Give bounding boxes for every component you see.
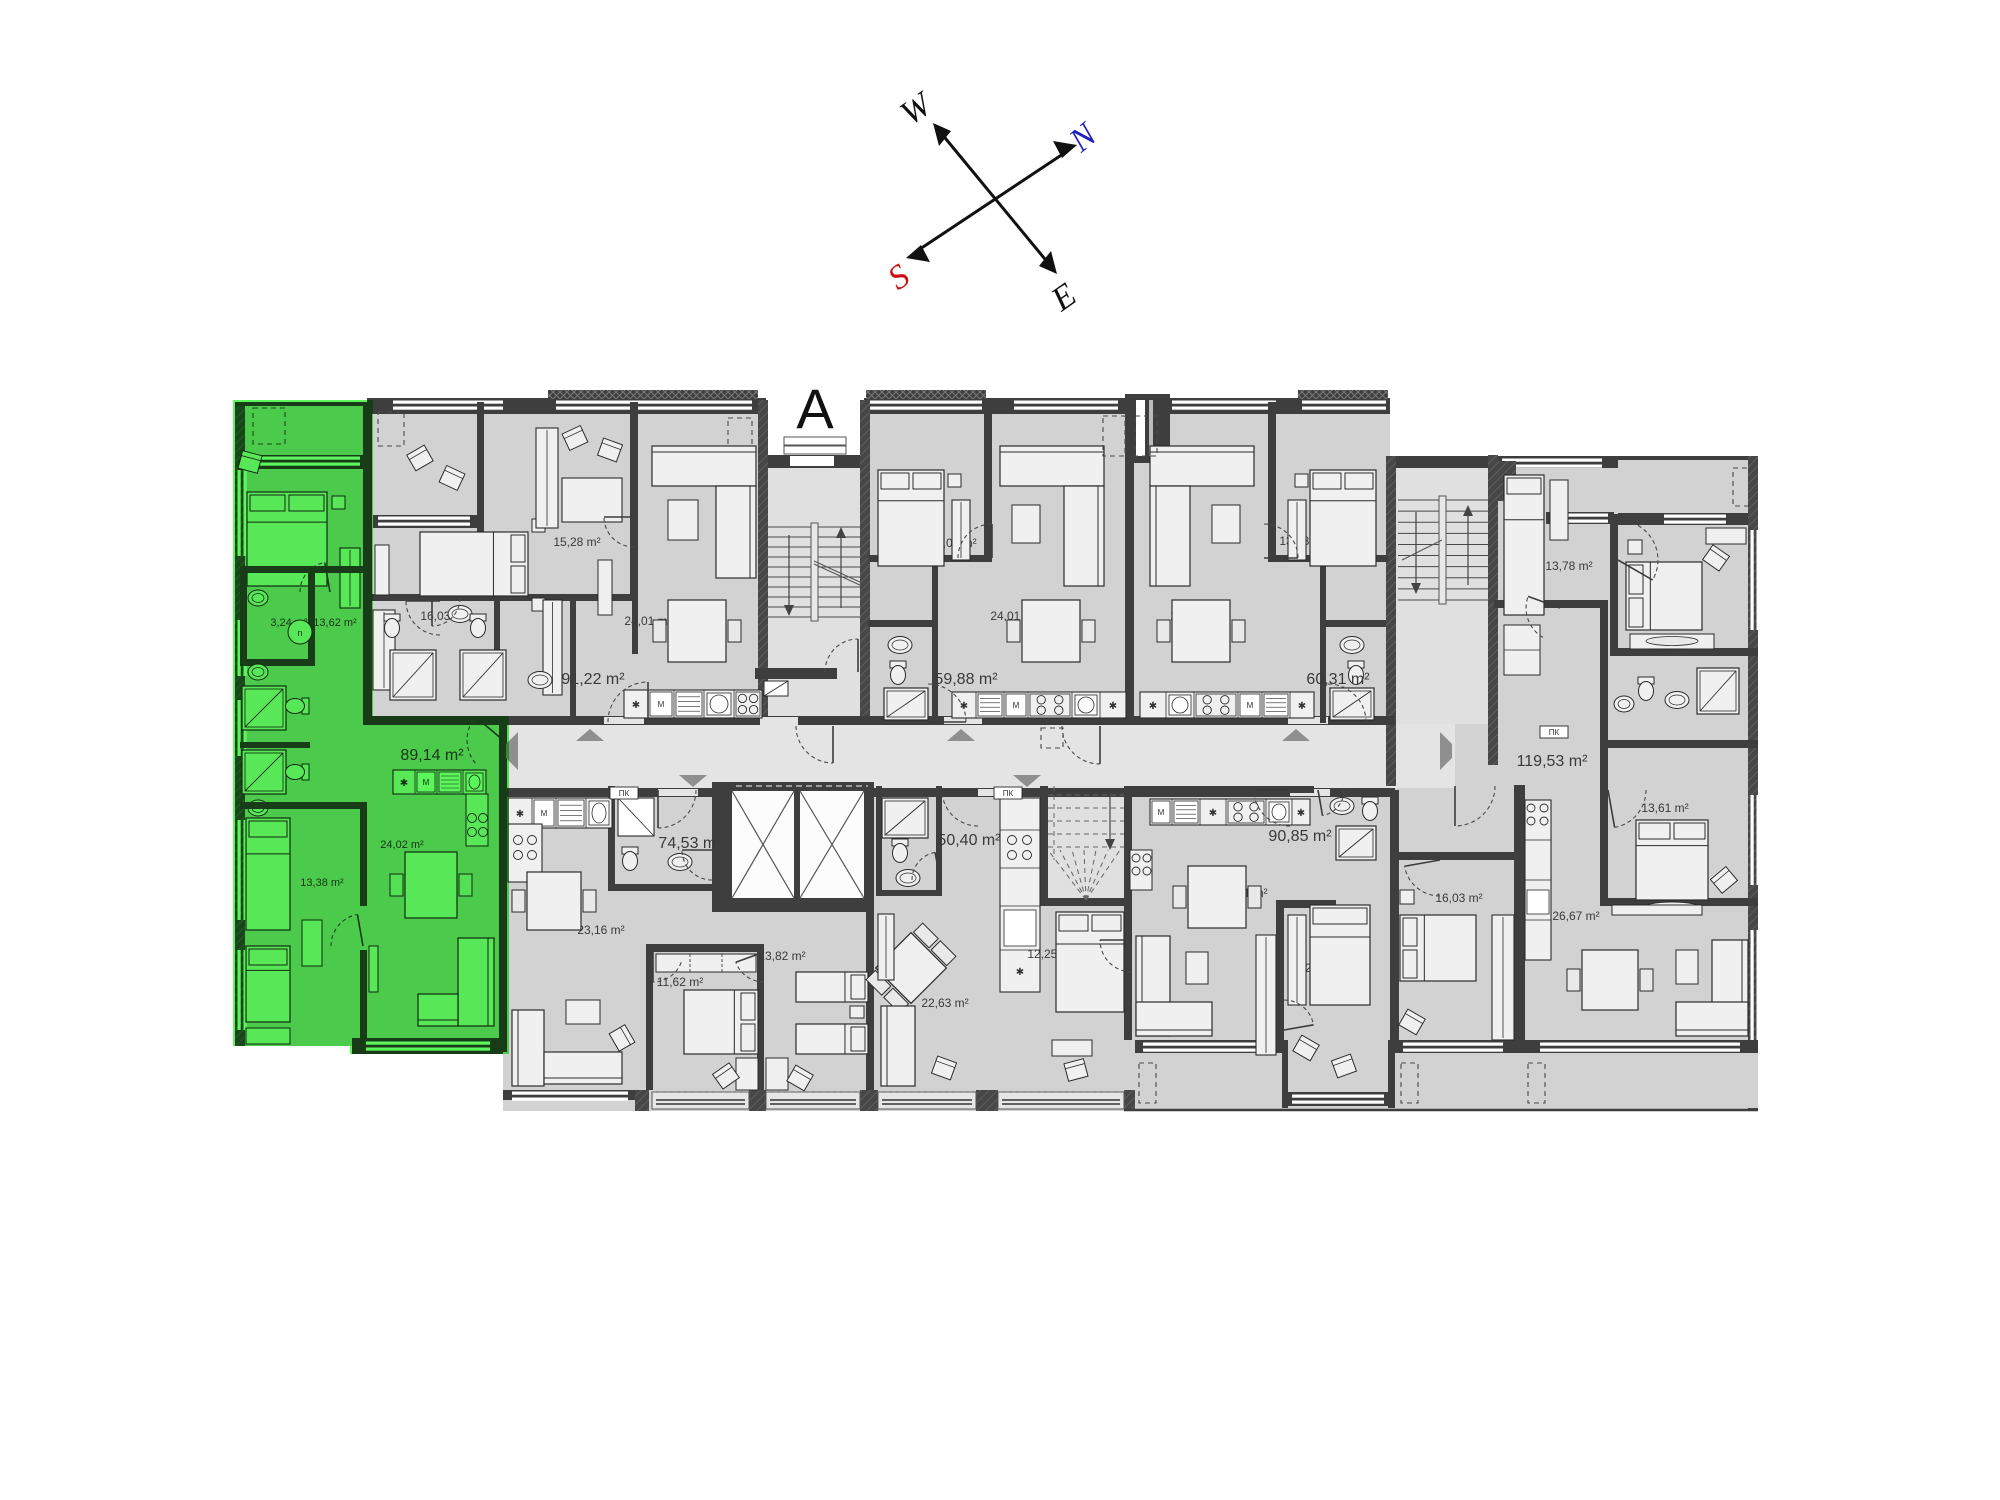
svg-text:M: M (1013, 701, 1020, 710)
svg-text:✱: ✱ (1209, 808, 1217, 819)
svg-text:A: A (796, 377, 834, 440)
svg-text:M: M (1247, 701, 1254, 710)
svg-text:✱: ✱ (960, 701, 968, 712)
svg-text:M: M (658, 700, 665, 709)
svg-text:M: M (1158, 808, 1165, 817)
svg-text:13,82 m²: 13,82 m² (758, 949, 805, 963)
svg-text:23,16 m²: 23,16 m² (577, 923, 624, 937)
svg-text:✱: ✱ (1298, 701, 1306, 712)
svg-text:✱: ✱ (1149, 701, 1157, 712)
svg-text:11,62 m²: 11,62 m² (657, 975, 703, 989)
svg-text:✱: ✱ (1016, 967, 1024, 978)
svg-text:✱: ✱ (1297, 808, 1305, 819)
svg-text:91,22 m²: 91,22 m² (561, 671, 625, 688)
svg-text:✱: ✱ (516, 809, 524, 820)
svg-text:ПК: ПК (1549, 728, 1560, 737)
svg-text:59,88 m²: 59,88 m² (934, 671, 998, 688)
svg-text:13,61 m²: 13,61 m² (1641, 801, 1688, 815)
svg-text:90,85 m²: 90,85 m² (1268, 828, 1332, 845)
svg-text:13,78 m²: 13,78 m² (1545, 559, 1592, 573)
svg-text:60,31 m²: 60,31 m² (1306, 671, 1370, 688)
svg-text:16,03 m²: 16,03 m² (1435, 891, 1482, 905)
svg-text:ПК: ПК (619, 789, 630, 798)
svg-text:119,53 m²: 119,53 m² (1517, 753, 1589, 770)
svg-text:M: M (541, 809, 548, 818)
svg-text:22,63 m²: 22,63 m² (921, 996, 968, 1010)
svg-text:✱: ✱ (1109, 701, 1117, 712)
svg-text:15,28 m²: 15,28 m² (553, 535, 600, 549)
svg-text:50,40 m²: 50,40 m² (937, 832, 1001, 849)
svg-text:ПК: ПК (1003, 789, 1014, 798)
svg-text:26,67 m²: 26,67 m² (1552, 909, 1599, 923)
svg-text:✱: ✱ (632, 700, 640, 711)
